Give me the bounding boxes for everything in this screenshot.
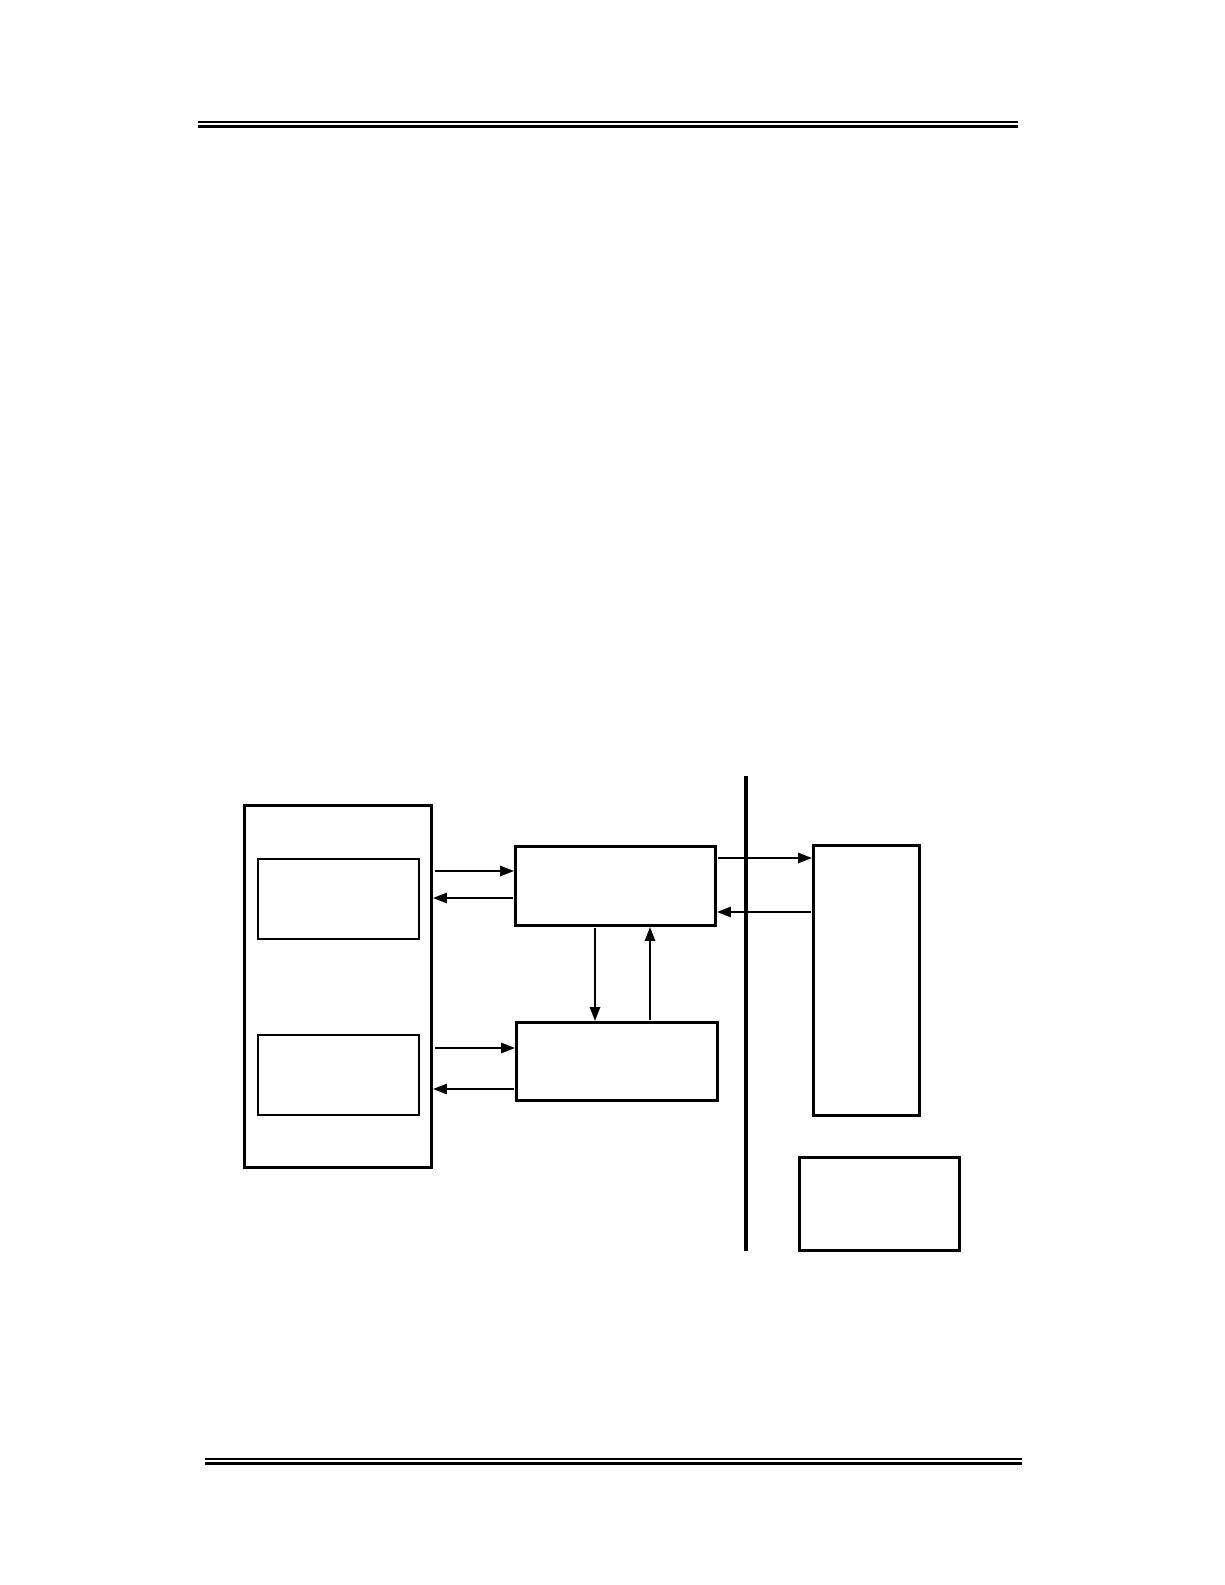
arrow-layer [0,0,1225,1585]
left-inner-top-box [257,858,420,940]
arrow-middle-top-to-right [718,853,812,864]
right-tall-box [812,844,921,1117]
arrow-middle-top-to-left [433,893,513,904]
arrow-middle-top-down [590,928,601,1021]
arrow-middle-bottom-to-left [433,1084,514,1095]
arrow-middle-bottom-up [645,927,656,1020]
footer-rule-thin [205,1458,1022,1460]
footer-rule-thick [205,1462,1022,1465]
arrow-left-to-middle-bottom [435,1043,515,1054]
header-rule-thick [198,125,1018,128]
middle-top-box [514,845,717,927]
vertical-divider-line [744,776,748,1251]
arrow-left-to-middle-top [435,866,514,877]
header-rule-thin [198,121,1018,123]
bottom-right-box [798,1156,961,1252]
left-inner-bottom-box [257,1034,420,1116]
document-page [0,0,1225,1585]
arrow-right-to-middle-top [717,907,811,918]
middle-bottom-box [515,1021,719,1102]
